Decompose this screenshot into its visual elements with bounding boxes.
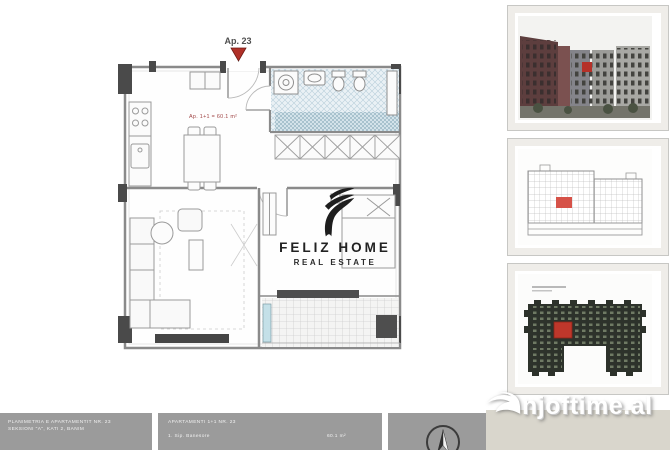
coffee-table [151,222,173,244]
footer-area-item: 1. Sip. Banesore [168,433,210,440]
building-elevation-image [518,149,652,245]
footer-apartment-title: APARTAMENTI 1+1 NR. 23 [168,419,372,426]
bath-cabinet [387,71,397,115]
thumb-mat [515,146,661,248]
area-label: Ap. 1+1 = 60.1 m² [189,114,237,120]
thumb-building-render[interactable] [507,5,669,131]
site-plan-image [518,274,652,384]
footer-line1: PLANIMETRIA E APARTAMENTIT NR. 23 [8,419,144,426]
balcony-window [277,290,359,298]
side-table [189,240,203,270]
unit-label: Ap. 23 [224,36,251,46]
thumb-mat [515,271,661,387]
footer-apartment-info: APARTAMENTI 1+1 NR. 23 1. Sip. Banesore … [158,413,382,450]
bidet [353,71,366,77]
footer-line2: SEKSIONI "A", KATI 2, BANIM [8,426,144,433]
compass-icon [426,425,460,450]
thumbnail-column [507,5,669,395]
sink [304,71,325,85]
logo-tagline: REAL ESTATE [276,258,394,267]
thumb-site-plan[interactable] [507,263,669,395]
logo-name: FELIZ HOME [276,240,394,255]
footer-area-value: 60.1 m² [327,433,372,440]
footer-compass-section [388,413,486,450]
footer-bar: PLANIMETRIA E APARTAMENTIT NR. 23 SEKSIO… [0,413,486,450]
thumb-mat [515,13,661,123]
balcony [262,290,400,347]
feliz-home-logo: FELIZ HOME REAL ESTATE [276,186,394,267]
tv-unit [155,334,229,343]
toilet [332,71,345,77]
wardrobe [275,135,400,159]
watermark-text: njoftime.al [522,392,653,421]
listing-image: Ap. 23 [0,0,670,450]
sofa-chaise [130,300,190,328]
watermark: njoftime.al [478,391,670,421]
armchair [178,209,202,231]
thumb-building-elevation[interactable] [507,138,669,256]
dining-table [184,127,220,190]
sofa [130,218,154,300]
bathroom [271,69,399,131]
unit-marker-pin-icon [231,48,246,61]
feliz-home-logo-icon [312,186,358,238]
dove-icon [478,391,522,421]
building-render-image [518,16,652,120]
footer-plan-title: PLANIMETRIA E APARTAMENTIT NR. 23 SEKSIO… [0,413,152,450]
washing-machine [274,71,298,94]
